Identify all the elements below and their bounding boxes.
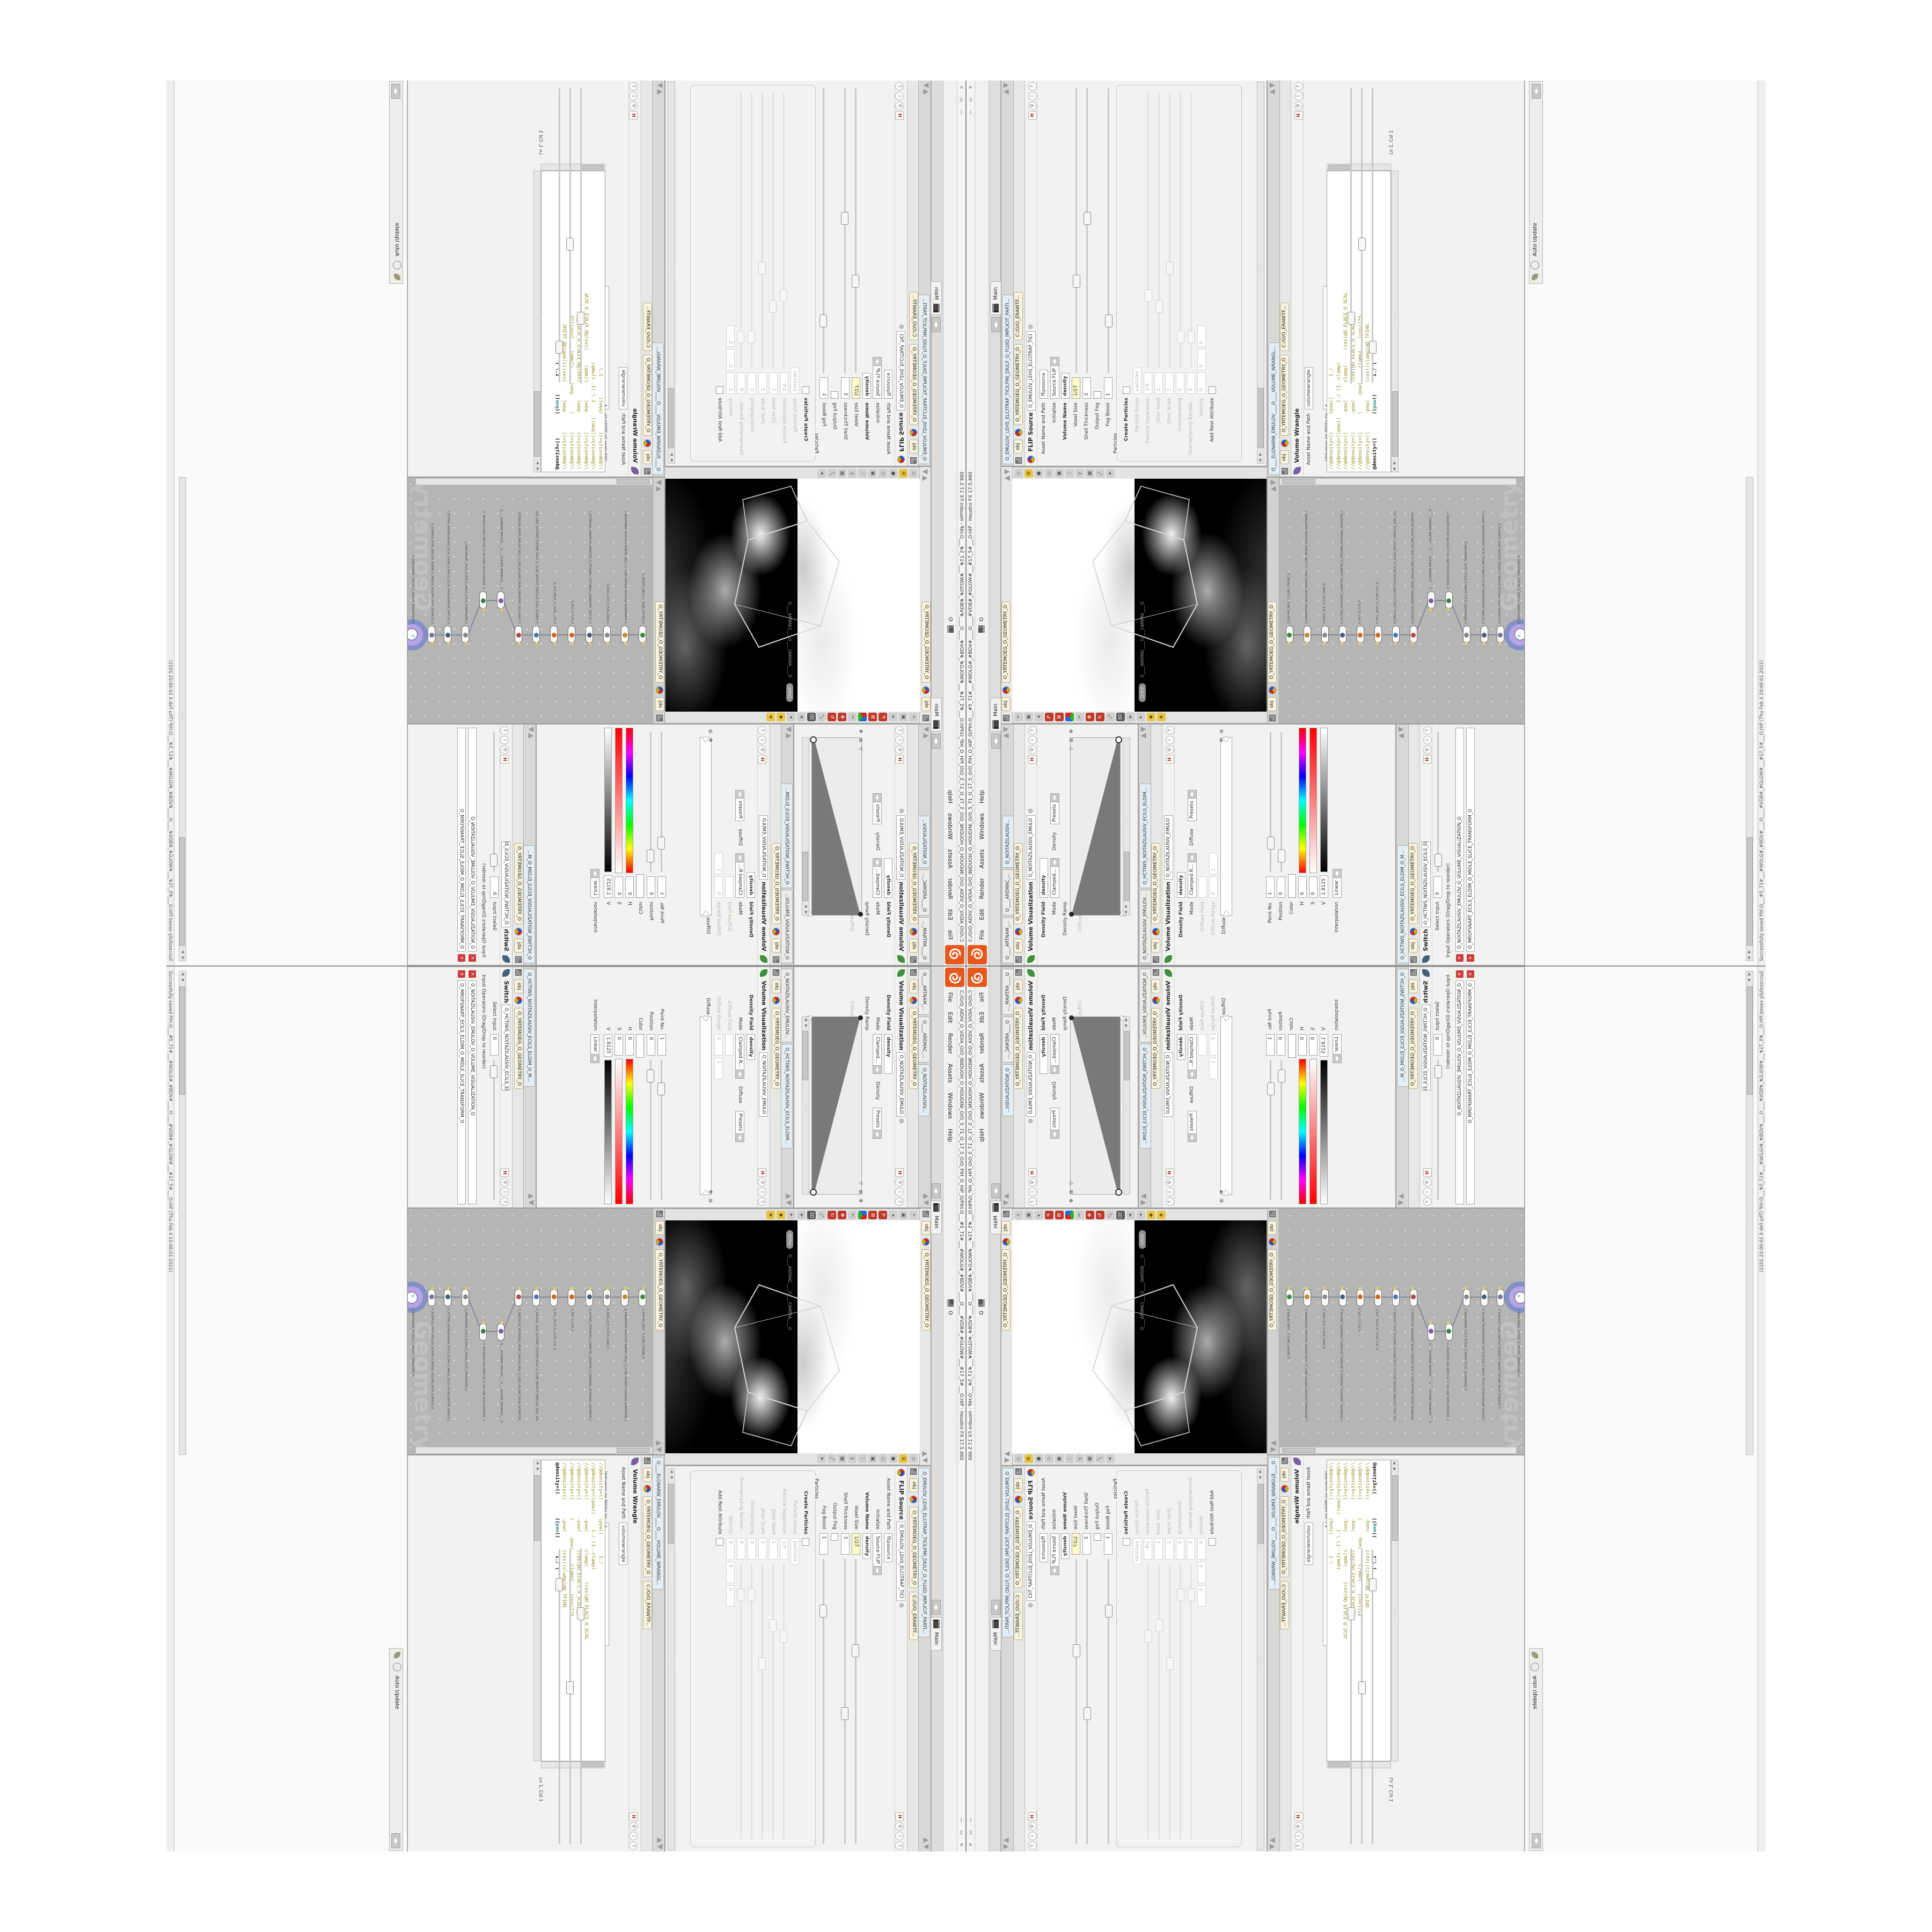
question-icon[interactable]: ? (1423, 1197, 1432, 1206)
pane-maximize-arrows[interactable]: ▲▼ (1002, 468, 1012, 481)
network-node[interactable] (1392, 1289, 1400, 1306)
viewport-left-toolbar[interactable]: ⌖▣◂P⊞✂✥↻⤢3D➤▸◆◈ (664, 711, 920, 723)
houdini-help-icon[interactable]: H (1294, 111, 1303, 120)
gear-icon[interactable]: ⚙ (898, 808, 905, 814)
network-node[interactable] (1304, 626, 1311, 643)
param-field[interactable]: 1 (1104, 1533, 1113, 1555)
viewport-tool-icon[interactable]: ◆ (777, 713, 785, 721)
info-icon[interactable]: i (895, 1832, 904, 1840)
menu-item-file[interactable]: File (943, 992, 957, 1002)
slider[interactable] (1086, 1559, 1088, 1844)
network-node[interactable] (568, 626, 575, 643)
mode-dropdown[interactable]: Clamped... (873, 866, 882, 898)
network-node[interactable] (586, 626, 593, 643)
param-field[interactable]: 1/27 (1072, 1533, 1080, 1555)
search-icon[interactable]: ⚲ (758, 1178, 766, 1187)
search-icon[interactable]: ⚲ (758, 745, 766, 754)
node-name-field[interactable]: O_NOITAZILAUSIV_EMULO (1164, 815, 1173, 880)
node-name-field[interactable]: O_HCTIWS_NOITAZILAUSIV_ECILS_EL (502, 1005, 511, 1091)
viewport-tool-icon[interactable]: ◈ (766, 713, 775, 721)
pane-tab[interactable]: O____AREMAC_... (1002, 1016, 1014, 1063)
obj-chip[interactable]: obj (514, 939, 523, 953)
node-name-field[interactable]: O_NOITAZILAUSIV_EMULO (759, 1052, 769, 1117)
viewport-tool-icon[interactable]: ⊞ (868, 1211, 877, 1219)
operator-name[interactable]: O_MROFSNART_ECILS_ELDIM_O_MIDLE_SLICE_TR… (457, 728, 466, 952)
menu-item-help[interactable]: Help (975, 790, 989, 803)
info-icon[interactable]: i (1423, 1188, 1432, 1196)
tab-main-2[interactable]: Main (990, 1617, 1001, 1651)
presets-button[interactable]: Presets (1188, 1111, 1197, 1134)
viewport-tool-icon[interactable]: ⊞ (1024, 1454, 1033, 1463)
pane-maximize-arrows[interactable]: ▲▼ (1397, 1194, 1405, 1206)
param-field[interactable]: 0 (1187, 372, 1195, 394)
tab-main-2[interactable]: Main (931, 1617, 942, 1651)
pane-maximize-arrows[interactable]: ▲▼ (922, 82, 930, 94)
param-field[interactable]: 0 (726, 1538, 735, 1560)
selected-node[interactable] (1514, 1292, 1525, 1304)
slider[interactable] (751, 93, 753, 368)
gear-icon[interactable]: ⚙ (1027, 1602, 1034, 1608)
help-icons[interactable]: H⚲i? (756, 1167, 768, 1206)
search-icon[interactable]: ⚲ (500, 1178, 509, 1187)
network-node[interactable] (639, 1289, 646, 1306)
param-field[interactable]: 0 (726, 1562, 735, 1583)
param-field[interactable]: 0 (1197, 1585, 1206, 1607)
network-node[interactable] (1339, 1289, 1346, 1306)
menu-item-assets[interactable]: Assets (975, 1064, 989, 1083)
houdini-help-icon[interactable]: H (1028, 1812, 1037, 1821)
houdini-help-icon[interactable]: H (895, 1168, 904, 1177)
ramp-marker-start[interactable] (702, 911, 709, 916)
help-icons[interactable]: H⚲i? (894, 1811, 905, 1850)
desktop-selector[interactable]: O (945, 1299, 955, 1321)
menu-item-edit[interactable]: Edit (943, 909, 957, 920)
pane-tab[interactable]: O____ELGNARW_EMULOV____O____VOLUME_WRANG… (1268, 1457, 1280, 1590)
obj-chip[interactable]: obj (1409, 939, 1418, 953)
viewport-right-toolbar[interactable]: ▫⊞●◇▣⋮y▦╱➤ (1012, 1452, 1268, 1465)
pane-maximize-arrows[interactable]: ▲▼ (656, 82, 664, 94)
viewport-tool-icon[interactable]: 3D (807, 1211, 816, 1219)
param-field[interactable] (725, 1034, 734, 1056)
network-node[interactable] (1374, 1289, 1382, 1306)
ramp-tools[interactable]: ▽ ⊞ ✥ (1069, 1181, 1074, 1204)
viewport-tool-icon[interactable]: ╱ (1096, 1454, 1104, 1463)
ramp-type-label[interactable]: Diffuse (1189, 1086, 1195, 1103)
viewport-tool-icon[interactable]: y (848, 469, 857, 478)
node-graph[interactable]: O_EREHPS_EBUC_O_CUBE_SPHERE_OO_EMARFERIW… (1278, 478, 1524, 723)
houdini-help-icon[interactable]: H (1423, 1168, 1432, 1177)
operator-name[interactable]: O_MROFSNART_ECILS_ELDIM_O_MIDLE_SLICE_TR… (1466, 728, 1475, 952)
param-field[interactable]: 1/9 (1144, 1538, 1152, 1560)
diffuse-ramp-widget[interactable] (700, 1016, 712, 1195)
pane-tab[interactable]: O____ARTNAM_... (1002, 917, 1014, 963)
pane-tab[interactable]: O_HCTIWS_NOITAZILAUSIV_ECILS_ELDIM_O_MID… (1397, 845, 1409, 963)
question-icon[interactable]: ? (1166, 726, 1174, 735)
network-vscrollbar[interactable] (415, 478, 653, 485)
ramp-scrollbar[interactable]: ◀▶ :::: (1123, 1016, 1130, 1195)
viewport-tool-icon[interactable]: ↻ (1096, 1211, 1104, 1219)
geometry-chip[interactable]: O_YRTEMOEG_O_GEOMETRY_O (514, 1008, 523, 1089)
pane-tab[interactable]: O_HCTIWS_NOITAZILAUSIV_ECILS_ELDIM_O_MID… (523, 845, 535, 963)
viewport-left-toolbar[interactable]: ⌖▣◂P⊞✂✥↻⤢3D➤▸◆◈ (664, 1209, 920, 1221)
viewport-tool-icon[interactable]: ╱ (828, 1454, 836, 1463)
pane-tab[interactable]: O_HCTIWS_NOITAZILAUSIV_ECILS_ELDIM... (1139, 1044, 1151, 1148)
info-icon[interactable]: i (895, 736, 904, 744)
auto-update-bar[interactable]: Auto Update ◀▶ (1529, 81, 1543, 284)
checkbox[interactable] (1123, 1538, 1130, 1546)
param-field[interactable]: 0 (726, 325, 735, 347)
help-icons[interactable]: H⚲i? (627, 82, 639, 121)
pane-tab[interactable]: O_NOITAZILAUSIV... (1002, 816, 1014, 868)
menu-item-assets[interactable]: Assets (975, 849, 989, 868)
viewport-tool-icon[interactable]: ╱ (828, 469, 836, 478)
remove-operator-button[interactable]: × (1467, 970, 1474, 978)
ramp-handle-start[interactable] (858, 912, 863, 917)
slider[interactable] (1108, 88, 1109, 373)
search-icon[interactable]: ⚲ (1028, 745, 1037, 754)
houdini-help-icon[interactable]: H (1166, 1168, 1174, 1177)
obj-chip[interactable]: obj (1268, 697, 1277, 711)
density-ramp-widget[interactable] (811, 737, 862, 916)
tab-scroll-left-2[interactable]: ◀▶ (991, 1600, 1000, 1615)
software-path-chip[interactable]: C:/O/O_ERAWTF... (909, 1592, 918, 1640)
question-icon[interactable]: ? (629, 82, 638, 91)
viewport-tool-icon[interactable]: ◆ (1147, 1211, 1155, 1219)
density-tab-label[interactable]: Density (875, 832, 880, 850)
viewport-tool-icon[interactable] (858, 713, 867, 721)
ortho-pill[interactable]: Ortho (786, 683, 793, 702)
info-icon[interactable]: i (629, 1832, 638, 1840)
network-node[interactable] (550, 1289, 558, 1306)
viewport-tool-icon[interactable]: ➤ (797, 713, 806, 721)
viewport-camera-label[interactable]: Ortho O____AREMAC____O____CAMERA____O (786, 1230, 793, 1330)
hsv-value[interactable]: 0 (625, 876, 634, 898)
viewport-tool-icon[interactable] (1065, 713, 1074, 721)
slider[interactable] (1372, 1549, 1373, 1845)
obj-chip[interactable]: obj (1409, 979, 1418, 993)
param-field[interactable]: 0 (1176, 1538, 1184, 1560)
color-swatch[interactable] (636, 1034, 645, 1058)
geometry-chip[interactable]: O_YRTEMOEG_O_GEOMETRY_O (514, 843, 523, 924)
info-icon[interactable]: i (758, 1188, 766, 1196)
obj-chip[interactable]: obj (1151, 939, 1160, 953)
viewport-tool-icon[interactable]: ▣ (1024, 1211, 1033, 1219)
houdini-help-icon[interactable]: H (1028, 111, 1037, 120)
pane-tab[interactable]: O_HCTIWS_NOITAZILAUSIV_ECILS_ELDIM... (1139, 784, 1151, 888)
param-field[interactable]: density (1177, 872, 1185, 898)
network-vscrollbar[interactable] (1279, 478, 1517, 485)
slider[interactable] (1180, 1564, 1181, 1839)
viewport-tool-icon[interactable]: ▸ (787, 713, 795, 721)
mode-dropdown[interactable]: Clamped R... (736, 862, 745, 898)
obj-chip[interactable]: obj (1280, 450, 1289, 464)
viewport-tool-icon[interactable]: ◆ (777, 1211, 785, 1219)
obj-chip[interactable]: obj (1268, 1221, 1277, 1235)
viewport-tool-icon[interactable]: ➤ (797, 1211, 806, 1219)
viewport-tool-icon[interactable]: ⊞ (868, 713, 877, 721)
node-graph[interactable]: O_EREHPS_EBUC_O_CUBE_SPHERE_OO_EMARFERIW… (408, 478, 654, 723)
slider[interactable] (823, 1559, 825, 1844)
hsv-value[interactable]: 0 (1298, 1034, 1307, 1056)
viewport-tool-icon[interactable]: ➤ (1126, 1211, 1135, 1219)
diffuse-ramp-widget[interactable] (700, 737, 712, 916)
operator-name[interactable]: O_NOITAZILAUSIV_EMULOV_O_VOLUME_VISUALIZ… (468, 980, 477, 1204)
hsv-value[interactable]: 0 (625, 1034, 634, 1056)
param-field[interactable]: 0 (1197, 1538, 1206, 1560)
viewport-tool-icon[interactable]: y (1075, 1454, 1084, 1463)
obj-chip[interactable]: obj (655, 1221, 664, 1235)
param-field[interactable]: particles (1133, 1538, 1141, 1564)
network-vscrollbar[interactable] (415, 1447, 653, 1454)
code-vscrollbar[interactable] (541, 1761, 605, 1768)
houdini-help-icon[interactable]: H (500, 755, 509, 764)
viewport-tool-icon[interactable]: ⊞ (899, 469, 908, 478)
viewport-tool-icon[interactable]: ▦ (838, 1454, 846, 1463)
operator-name[interactable]: O_MROFSNART_ECILS_ELDIM_O_MIDLE_SLICE_TR… (1466, 980, 1475, 1204)
auto-update-arrows[interactable]: ◀▶ (391, 84, 400, 99)
checkbox[interactable] (802, 386, 809, 394)
network-node[interactable] (428, 1289, 435, 1306)
software-path-chip[interactable]: C:/O/O_ERAWTF... (1014, 292, 1023, 340)
viewport-tool-icon[interactable]: ◂ (889, 1211, 897, 1219)
question-icon[interactable]: ? (895, 726, 904, 735)
param-field[interactable]: 0 (714, 876, 723, 898)
geometry-chip[interactable]: O_YRTEMOEG_O_GEOMETRY_O (909, 344, 918, 425)
geometry-chip[interactable]: O_YRTEMOEG_O_GEOMETRY_O (1151, 843, 1160, 924)
param-field[interactable]: 1/9 (1144, 372, 1152, 394)
select-input-value[interactable]: 0 (1433, 876, 1442, 898)
viewport-right-toolbar[interactable]: ▫⊞●◇▣⋮y▦╱➤ (664, 467, 920, 480)
window-hscrollbar[interactable]: ◀▶ :::: (1746, 477, 1753, 961)
network-node[interactable] (621, 1289, 628, 1306)
desktop-selector[interactable]: O (977, 1299, 987, 1321)
viewport-tool-icon[interactable]: P (879, 1211, 887, 1219)
viewport-tool-icon[interactable]: ↻ (1096, 713, 1104, 721)
tab-scroll-left[interactable]: ◀▶ (932, 1183, 941, 1198)
checkbox[interactable] (831, 1533, 838, 1541)
ramp-marker-start[interactable] (702, 1016, 709, 1021)
viewport-tool-icon[interactable]: ▣ (899, 713, 908, 721)
obj-chip[interactable]: obj (1014, 979, 1023, 993)
help-icons[interactable]: H⚲i? (894, 82, 905, 121)
network-node[interactable] (1321, 626, 1329, 643)
param-field[interactable]: 0 (737, 1538, 745, 1560)
pane-hscrollbar[interactable]: ◀▶ :::: (668, 1468, 675, 1850)
pane-tab[interactable]: O____ELGNARW_EMULOV____O____VOLUME_WRANG… (1268, 342, 1280, 475)
network-node[interactable] (1304, 1289, 1311, 1306)
menu-item-windows[interactable]: Windows (975, 1093, 989, 1119)
mode-dropdown[interactable]: Clamped R... (1188, 1034, 1197, 1070)
slider[interactable] (1158, 1564, 1160, 1839)
geometry-chip[interactable]: O_YRTEMOEG_O_GEOMETRY_O (1014, 344, 1023, 425)
pane-maximize-arrows[interactable]: ▲▼ (922, 726, 930, 738)
hsv-gradient-bar[interactable] (626, 1059, 633, 1204)
param-field[interactable]: flipsource (1040, 1533, 1048, 1562)
pane-maximize-arrows[interactable]: ▲▼ (527, 726, 535, 738)
help-icons[interactable]: H⚲i? (499, 1167, 510, 1206)
param-field[interactable]: 3 (1082, 377, 1091, 399)
menu-item-file[interactable]: File (975, 930, 989, 940)
obj-chip[interactable]: obj (643, 1468, 652, 1482)
obj-chip[interactable]: obj (514, 979, 523, 993)
viewport-tool-icon[interactable]: ◇ (879, 469, 887, 478)
viewport-right-toolbar[interactable]: ▫⊞●◇▣⋮y▦╱➤ (664, 1452, 920, 1465)
density-field-value[interactable]: density (1040, 858, 1048, 898)
param-field[interactable]: 0 (1197, 372, 1206, 394)
geometry-chip[interactable]: O_YRTEMOEG_O_GEOMETRY_O (772, 1008, 781, 1089)
color-swatch[interactable] (1288, 1034, 1296, 1058)
density-ramp-widget[interactable] (811, 1016, 862, 1195)
help-icons[interactable]: H⚲i? (894, 726, 905, 765)
node-graph[interactable]: O_EREHPS_EBUC_O_CUBE_SPHERE_OO_EMARFERIW… (408, 1209, 654, 1454)
pane-maximize-arrows[interactable]: ▲▼ (922, 1194, 930, 1206)
param-field[interactable]: 1/27 (852, 377, 860, 399)
tab-scroll-left[interactable]: ◀▶ (991, 734, 1000, 749)
houdini-help-icon[interactable]: H (1166, 755, 1174, 764)
software-path-chip[interactable]: C:/O/O_ERAWTF... (909, 292, 918, 340)
pane-maximize-arrows[interactable]: ▲▼ (1268, 479, 1278, 492)
mode-dropdown[interactable]: Clamped... (873, 1034, 882, 1066)
network-node[interactable] (1286, 626, 1293, 643)
slider[interactable] (1270, 732, 1271, 872)
viewport-tool-icon[interactable]: P (1045, 713, 1053, 721)
viewport-tool-icon[interactable]: ● (889, 469, 897, 478)
pane-hscrollbar[interactable]: ◀▶ :::: (668, 82, 675, 464)
dropdown[interactable]: Source FLIP (1050, 1533, 1059, 1567)
network-node[interactable] (444, 626, 451, 643)
slider[interactable] (1086, 88, 1088, 373)
slider[interactable] (823, 88, 825, 373)
slider[interactable] (784, 1564, 785, 1839)
slider[interactable] (1075, 88, 1077, 373)
geometry-chip[interactable]: O_YRTEMOEG_O_GEOMETRY_O (1409, 1008, 1418, 1089)
menu-item-assets[interactable]: Assets (943, 849, 957, 868)
slider[interactable] (650, 1060, 652, 1200)
search-icon[interactable]: ⚲ (1166, 745, 1174, 754)
selected-node[interactable] (1514, 628, 1525, 640)
search-icon[interactable]: ⚲ (1028, 1822, 1037, 1831)
network-node[interactable] (428, 626, 435, 643)
slider[interactable] (1180, 93, 1181, 368)
menu-item-help[interactable]: Help (943, 790, 957, 803)
slider[interactable] (661, 1060, 663, 1200)
obj-chip[interactable]: obj (1014, 440, 1023, 453)
density-field-value[interactable]: density (884, 858, 892, 898)
param-field[interactable]: 2 (758, 372, 767, 394)
desktop-selector[interactable]: O (977, 611, 987, 633)
param-field[interactable]: 0 (1209, 876, 1218, 898)
code-hscrollbar[interactable]: ◀▶ :::: (1391, 1460, 1399, 1761)
viewport-tool-icon[interactable]: ⊞ (899, 1454, 908, 1463)
software-path-chip[interactable]: C:/O/O_ERAWTF... (643, 1581, 652, 1629)
slider[interactable] (741, 93, 742, 368)
node-name-field[interactable]: O_NOITAZILAUSIV_EMULO (897, 1052, 906, 1117)
network-node[interactable] (532, 1289, 540, 1306)
help-icons[interactable]: H⚲i? (756, 726, 768, 765)
menu-item-render[interactable]: Render (943, 1033, 957, 1054)
viewport-tool-icon[interactable]: ▦ (838, 469, 846, 478)
network-node[interactable] (1497, 626, 1504, 643)
ramp-handle-end[interactable] (810, 736, 817, 743)
param-field[interactable]: 0 (748, 1538, 756, 1560)
viewport-tool-icon[interactable]: ⊞ (1055, 1211, 1064, 1219)
viewport-tool-icon[interactable]: 3D (807, 713, 816, 721)
param-field[interactable]: density (1061, 1533, 1070, 1559)
menu-item-windows[interactable]: Windows (943, 813, 957, 839)
viewport-tool-icon[interactable]: y (848, 1454, 857, 1463)
geometry-chip[interactable]: O_YRTEMOEG_O_GEOMETRY_O (909, 843, 918, 924)
pane-tab[interactable]: O____AREMAC_... (918, 869, 930, 916)
help-icons[interactable]: H⚲i? (1027, 1167, 1038, 1206)
viewport-tool-icon[interactable]: ● (1035, 1454, 1043, 1463)
houdini-help-icon[interactable]: H (1294, 1812, 1303, 1821)
param-field[interactable]: density (1061, 373, 1070, 399)
param-field[interactable]: particles (1133, 368, 1141, 394)
ramp-tools[interactable]: ▽ ⊞ ✥ (1069, 728, 1074, 751)
param-field[interactable]: 1 (819, 377, 828, 399)
auto-update-arrows[interactable]: ◀▶ (1532, 84, 1541, 99)
geometry-chip[interactable]: O_YRTEMOEG_O_GEOMETRY_O (921, 602, 931, 683)
remove-operator-button[interactable]: × (1456, 954, 1463, 962)
presets-button[interactable]: Presets (873, 1108, 882, 1131)
hsv-value[interactable]: 1.8125 (1320, 876, 1328, 898)
question-icon[interactable]: ? (1028, 726, 1037, 735)
param-field[interactable]: 0 (726, 349, 735, 370)
menu-item-help[interactable]: Help (975, 1129, 989, 1142)
dropdown[interactable]: Source FLIP (873, 365, 882, 399)
search-icon[interactable]: ⚲ (1294, 101, 1303, 110)
gear-icon[interactable]: ⚙ (898, 324, 905, 330)
density-field-value[interactable]: density (884, 1034, 892, 1074)
search-icon[interactable]: ⚲ (629, 101, 638, 110)
houdini-help-icon[interactable]: H (629, 111, 638, 120)
hsv-value[interactable]: 0 (1298, 876, 1307, 898)
param-field[interactable]: 0 (1197, 1562, 1206, 1583)
network-node[interactable] (532, 626, 540, 643)
pane-maximize-arrows[interactable]: ▲▼ (1139, 726, 1147, 738)
param-field[interactable]: 1 (657, 1034, 666, 1056)
window-buttons[interactable]: — ▭ × (967, 1817, 975, 1850)
houdini-help-icon[interactable]: H (1423, 755, 1432, 764)
info-icon[interactable]: i (895, 92, 904, 100)
code-vscrollbar[interactable] (1327, 1761, 1391, 1768)
question-icon[interactable]: ? (629, 1841, 638, 1850)
hsv-gradient-bar[interactable] (1320, 728, 1328, 873)
menu-item-file[interactable]: File (975, 992, 989, 1002)
question-icon[interactable]: ? (1166, 1197, 1174, 1206)
viewport-tool-icon[interactable]: P (879, 713, 887, 721)
search-icon[interactable]: ⚲ (895, 1178, 904, 1187)
help-icons[interactable]: H⚲i? (1027, 82, 1038, 121)
menu-item-render[interactable]: Render (975, 878, 989, 899)
viewport-tool-icon[interactable]: ➤ (1126, 713, 1135, 721)
operator-name[interactable]: O_MROFSNART_ECILS_ELDIM_O_MIDLE_SLICE_TR… (457, 980, 466, 1204)
slider[interactable] (762, 1564, 764, 1839)
operator-name[interactable]: O_NOITAZILAUSIV_EMULOV_O_VOLUME_VISUALIZ… (1455, 728, 1464, 952)
window-hscrollbar[interactable]: ◀▶ :::: (179, 971, 186, 1455)
ramp-tools[interactable]: ✥ ⊞ (707, 1190, 713, 1204)
software-path-chip[interactable]: C:/O/O_ERAWTF... (643, 303, 652, 351)
pane-tab[interactable]: O_HCTIWS_NOITAZILAUSIV_ECILS_ELDIM_O_MID… (1397, 969, 1409, 1087)
pane-network-editor[interactable]: obj O_YRTEMOEG_O_GEOMETRY_O ▲▼ Geometry … (1267, 477, 1525, 724)
viewport-tool-icon[interactable]: ◇ (1045, 1454, 1053, 1463)
slider[interactable] (845, 1559, 846, 1844)
interpolation-dropdown[interactable]: Linear (591, 877, 600, 898)
network-node[interactable] (1497, 1289, 1504, 1306)
viewport-tool-icon[interactable]: ◂ (1035, 713, 1043, 721)
pane-maximize-arrows[interactable]: ▲▼ (1139, 1194, 1147, 1206)
mode-dropdown[interactable]: Clamped... (1050, 866, 1059, 898)
